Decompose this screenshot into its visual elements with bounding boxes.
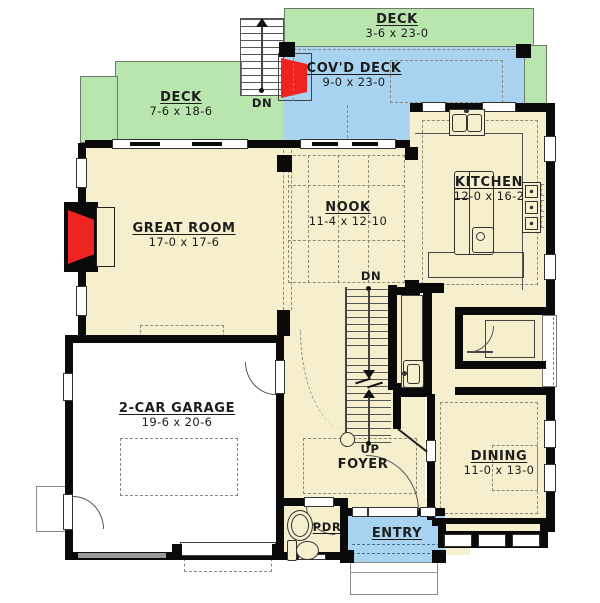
nook-beam-h2 (288, 240, 405, 241)
label-pdr: PDR (313, 521, 342, 534)
garage-door-right (180, 542, 276, 556)
label-dining: DINING 11-0 x 13-0 (464, 450, 535, 477)
label-foyer: FOYER (338, 458, 389, 472)
garage-ceiling-dashed (120, 438, 238, 496)
greatroom-window-sash2 (192, 142, 222, 146)
nook-beam-h1 (288, 185, 405, 186)
label-deck-top: DECK 3-6 x 23-0 (366, 13, 429, 40)
deck-left-floor-notch (80, 76, 118, 143)
dining-bay-window1 (444, 534, 472, 547)
entry-steps (350, 562, 438, 595)
garage-door-jamb-left (172, 544, 182, 560)
fireplace-hearth (96, 207, 115, 267)
wall-garage-north (65, 335, 283, 343)
wall-east-lower (546, 387, 555, 532)
post-foyer-west (277, 310, 290, 336)
label-kitchen: KITCHEN 12-0 x 16-2 (454, 176, 525, 203)
roof-edge-dashed (288, 49, 520, 50)
covd-deck-dims: 9-0 x 23-0 (307, 76, 402, 89)
post-nook-west (277, 155, 292, 172)
wall-hall-south (455, 387, 546, 395)
dining-east-window1 (544, 420, 556, 448)
entry-post-left (340, 550, 354, 563)
butler-sink (403, 360, 424, 388)
garage-side-door-leaf (63, 494, 73, 530)
deck-post-left (279, 42, 295, 57)
deck-stairs-arrow-line (261, 26, 263, 90)
kitchen-east-window2 (544, 254, 556, 280)
great-room-name: GREAT ROOM (132, 222, 235, 236)
covered-deck-ceiling-dashed (390, 60, 503, 103)
pdr-sink (287, 510, 313, 541)
kitchen-peninsula-counter (428, 252, 524, 278)
deck-top-name: DECK (366, 13, 429, 27)
dining-bay-window2 (478, 534, 506, 547)
garage-door-jamb-right (272, 544, 283, 560)
entry-post-right (432, 550, 446, 563)
entry-name: ENTRY (372, 527, 422, 541)
label-stair-up: UP (361, 443, 380, 456)
deck-left-dims: 7-6 x 18-6 (150, 105, 213, 118)
wall-east-upper (546, 103, 555, 315)
east-bay-dashed (553, 317, 554, 385)
dining-dims: 11-0 x 13-0 (464, 464, 535, 477)
stair-dn-text: DN (361, 270, 381, 283)
kitchen-dims: 12-0 x 16-2 (454, 190, 525, 203)
stair-up-line (368, 397, 370, 442)
entry-sidelite-right (420, 507, 436, 517)
entry-step-dash2 (352, 553, 440, 554)
label-great-room: GREAT ROOM 17-0 x 17-6 (132, 222, 235, 249)
wall-butler-east (423, 290, 432, 390)
label-stair-dn: DN (361, 270, 381, 283)
label-garage: 2-CAR GARAGE 19-6 x 20-6 (119, 402, 235, 429)
greatroom-west-window1 (76, 158, 87, 188)
kitchen-east-window1 (544, 136, 556, 162)
greatroom-overhang-dash2 (291, 150, 292, 310)
outdoor-fireplace-dashed (293, 53, 294, 101)
stair-up-text: UP (361, 443, 380, 456)
garage-dims: 19-6 x 20-6 (119, 416, 235, 429)
kitchen-north-window1 (422, 102, 446, 112)
east-bay-recess (542, 315, 557, 387)
dining-bay-sill (446, 524, 540, 531)
wall-closet (393, 383, 401, 429)
wall-mudroom-west (455, 307, 463, 369)
label-deck-dn: DN (252, 97, 272, 110)
dining-name: DINING (464, 450, 535, 464)
entry-steps-line (350, 572, 438, 573)
great-room-dims: 17-0 x 17-6 (132, 236, 235, 249)
garage-west-window (63, 373, 73, 401)
wall-stair-east (388, 285, 397, 390)
label-entry: ENTRY (372, 527, 422, 541)
nook-dims: 11-4 x 12-10 (309, 215, 387, 228)
floor-plan: DECK 3-6 x 23-0 COV'D DECK 9-0 x 23-0 DE… (0, 0, 600, 603)
stair-newel-curl (340, 432, 355, 447)
covd-deck-name: COV'D DECK (307, 62, 402, 76)
kitchen-range (522, 182, 541, 233)
label-deck-left: DECK 7-6 x 18-6 (150, 91, 213, 118)
garage-door-left-sill (78, 553, 166, 558)
garage-apron-dashed (184, 558, 272, 572)
greatroom-window-sash1 (130, 142, 160, 146)
deck-dn-text: DN (252, 97, 272, 110)
stair-west-stringer (345, 287, 347, 447)
greatroom-overhang-dash1 (283, 150, 284, 310)
kitchen-name: KITCHEN (454, 176, 525, 190)
kitchen-north-window2 (482, 102, 516, 112)
wall-mudroom-north (455, 307, 546, 315)
stair-dn-line (368, 290, 370, 370)
nook-name: NOOK (309, 201, 387, 215)
nook-door-sash1 (312, 142, 338, 146)
deck-stairs-arrow-dot (259, 88, 264, 93)
greatroom-west-window2 (76, 286, 87, 316)
garage-house-door-leaf (275, 360, 285, 394)
dining-east-window2 (544, 464, 556, 492)
deck-above-edge-dashed (347, 105, 348, 143)
nook-door-sash2 (352, 142, 378, 146)
label-covd-deck: COV'D DECK 9-0 x 23-0 (307, 62, 402, 89)
deck-post-right (516, 44, 531, 58)
post-nook-southeast (405, 280, 419, 294)
entry-step-dash1 (352, 544, 440, 545)
deck-stairs-arrow-head (256, 18, 268, 27)
garage-name: 2-CAR GARAGE (119, 402, 235, 416)
wall-mudroom-south (455, 361, 546, 369)
garage-side-stoop (36, 486, 66, 532)
deck-top-dims: 3-6 x 23-0 (366, 27, 429, 40)
dining-bay-window3 (512, 534, 540, 547)
kitchen-sink (449, 109, 485, 136)
label-nook: NOOK 11-4 x 12-10 (309, 201, 387, 228)
outdoor-fireplace-firebox (281, 58, 307, 98)
foyer-name: FOYER (338, 458, 389, 472)
pdr-toilet-bowl (296, 541, 319, 560)
deck-left-name: DECK (150, 91, 213, 105)
pdr-name: PDR (313, 521, 342, 534)
post-nook-northeast (405, 147, 418, 160)
